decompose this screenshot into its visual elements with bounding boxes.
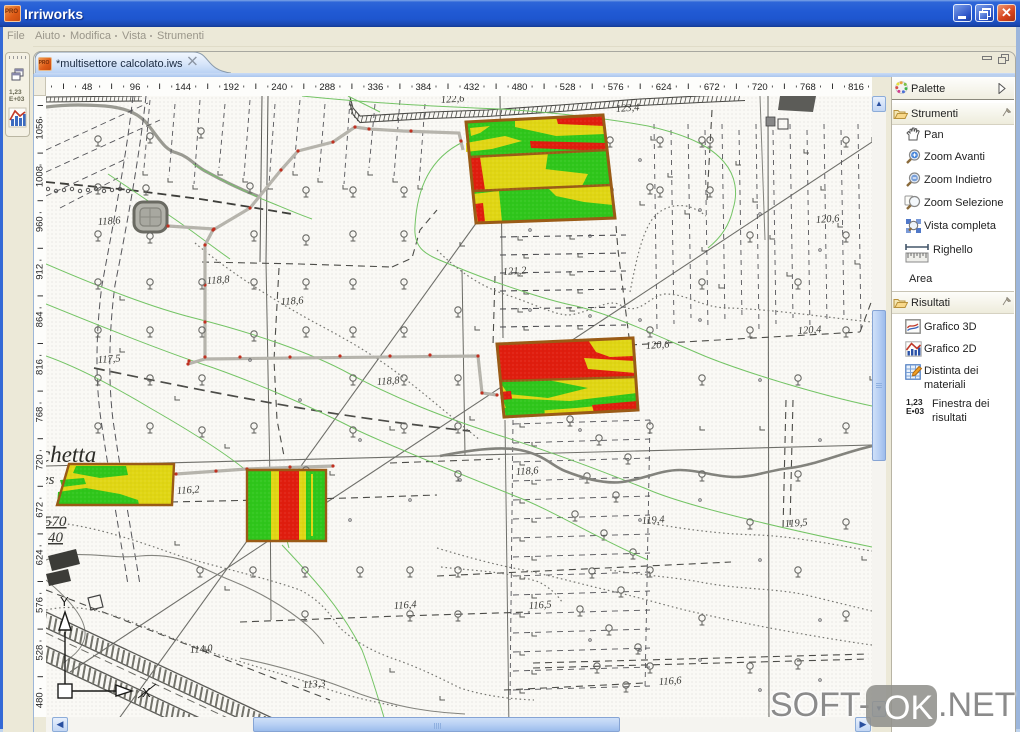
svg-text:768: 768	[35, 407, 46, 423]
svg-text:672: 672	[35, 502, 46, 518]
svg-text:528: 528	[35, 645, 46, 661]
svg-text:432: 432	[464, 82, 480, 93]
svg-text:118,6: 118,6	[515, 465, 539, 478]
svg-text:118,6: 118,6	[97, 215, 121, 228]
svg-text:116,5: 116,5	[528, 599, 552, 612]
svg-text:144: 144	[175, 82, 191, 93]
svg-text:864: 864	[35, 311, 46, 327]
svg-text:121,2: 121,2	[502, 265, 527, 278]
svg-text:123,4: 123,4	[615, 102, 640, 115]
svg-text:40: 40	[48, 530, 64, 546]
svg-text:336: 336	[367, 82, 383, 93]
svg-text:X: X	[142, 685, 151, 700]
svg-text:113,3: 113,3	[302, 678, 326, 691]
svg-text:624: 624	[35, 549, 46, 565]
svg-text:576: 576	[608, 82, 624, 93]
svg-text:576: 576	[35, 597, 46, 613]
svg-text:528: 528	[560, 82, 576, 93]
svg-text:960: 960	[35, 216, 46, 232]
svg-text:es: es	[46, 472, 55, 488]
svg-text:1008: 1008	[35, 166, 46, 187]
svg-text:118,8: 118,8	[206, 274, 230, 287]
svg-text:816: 816	[848, 82, 864, 93]
svg-text:768: 768	[800, 82, 816, 93]
svg-text:116,6: 116,6	[658, 675, 682, 688]
svg-text:240: 240	[271, 82, 287, 93]
svg-text:120,6: 120,6	[815, 213, 840, 226]
svg-text:119,5: 119,5	[784, 517, 808, 530]
svg-text:480: 480	[35, 692, 46, 708]
svg-text:192: 192	[223, 82, 239, 93]
svg-text:816: 816	[35, 359, 46, 375]
svg-text:119,4: 119,4	[641, 514, 665, 527]
svg-text:48: 48	[82, 82, 93, 93]
svg-text:720: 720	[35, 454, 46, 470]
svg-text:720: 720	[752, 82, 768, 93]
svg-text:116,2: 116,2	[176, 484, 200, 497]
svg-text:120,4: 120,4	[797, 324, 822, 337]
svg-text:480: 480	[512, 82, 528, 93]
svg-text:624: 624	[656, 82, 672, 93]
svg-text:570: 570	[46, 514, 67, 530]
svg-text:118,8: 118,8	[376, 375, 400, 388]
svg-text:288: 288	[319, 82, 335, 93]
svg-text:672: 672	[704, 82, 720, 93]
svg-text:Y: Y	[60, 594, 69, 609]
svg-text:96: 96	[130, 82, 141, 93]
svg-text:118,6: 118,6	[280, 295, 304, 308]
svg-text:117,5: 117,5	[97, 353, 121, 366]
svg-text:912: 912	[35, 264, 46, 280]
svg-text:1056: 1056	[35, 118, 46, 139]
svg-text:384: 384	[415, 82, 431, 93]
svg-text:120,6: 120,6	[645, 339, 670, 352]
svg-text:114,0: 114,0	[189, 643, 213, 656]
svg-text:122,6: 122,6	[440, 96, 465, 106]
svg-text:116,4: 116,4	[393, 599, 417, 612]
